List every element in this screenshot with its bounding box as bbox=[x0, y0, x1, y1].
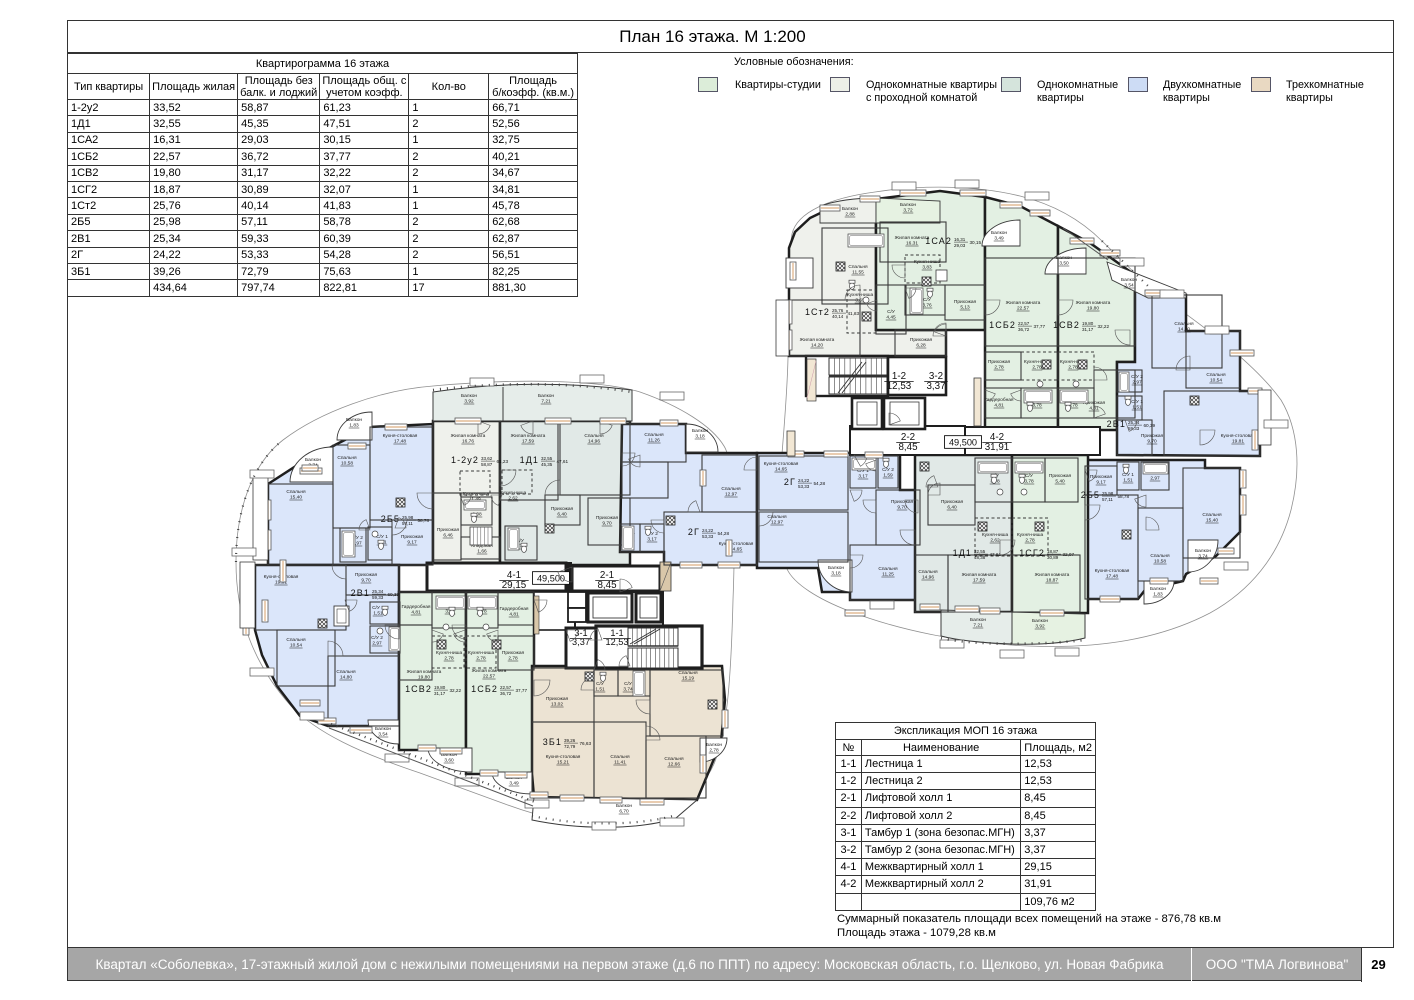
svg-text:5,13: 5,13 bbox=[960, 305, 970, 311]
svg-text:30,89: 30,89 bbox=[1047, 555, 1059, 560]
svg-text:2,78: 2,78 bbox=[476, 656, 486, 662]
svg-text:Жилая комната: Жилая комната bbox=[472, 668, 507, 674]
svg-text:С/У: С/У bbox=[923, 297, 932, 303]
svg-text:58,78: 58,78 bbox=[417, 518, 429, 523]
svg-text:Балкон: Балкон bbox=[706, 742, 722, 748]
svg-text:29,15: 29,15 bbox=[502, 580, 527, 591]
svg-text:Прихожая: Прихожая bbox=[1141, 433, 1164, 439]
svg-text:3,72: 3,72 bbox=[903, 208, 913, 214]
svg-text:Балкон: Балкон bbox=[461, 393, 477, 399]
svg-text:31,91: 31,91 bbox=[985, 442, 1010, 453]
svg-text:3,92: 3,92 bbox=[1035, 624, 1045, 630]
svg-text:Прихожая: Прихожая bbox=[502, 650, 525, 656]
svg-text:11,41: 11,41 bbox=[614, 760, 626, 766]
svg-text:72,79: 72,79 bbox=[564, 744, 576, 749]
svg-text:10,54: 10,54 bbox=[290, 643, 302, 649]
svg-text:9,70: 9,70 bbox=[602, 521, 612, 527]
svg-text:3,83: 3,83 bbox=[922, 265, 932, 271]
svg-text:Прихожая: Прихожая bbox=[910, 337, 933, 343]
svg-text:33,62: 33,62 bbox=[481, 456, 493, 461]
svg-text:2,78: 2,78 bbox=[1032, 365, 1042, 371]
svg-text:3,78: 3,78 bbox=[1032, 403, 1042, 409]
svg-text:15,40: 15,40 bbox=[290, 495, 302, 501]
svg-text:29,03: 29,03 bbox=[954, 243, 966, 248]
svg-text:25,98: 25,98 bbox=[1102, 491, 1114, 496]
svg-text:Балкон: Балкон bbox=[375, 726, 391, 732]
svg-text:Жилая комната: Жилая комната bbox=[1076, 300, 1111, 306]
svg-text:2,97: 2,97 bbox=[1150, 476, 1160, 482]
svg-text:Балкон: Балкон bbox=[1056, 255, 1072, 261]
svg-text:Кухня-ниша: Кухня-ниша bbox=[500, 490, 527, 496]
svg-text:17,59: 17,59 bbox=[522, 439, 534, 445]
svg-text:36,72: 36,72 bbox=[500, 691, 512, 696]
svg-text:7,21: 7,21 bbox=[541, 399, 551, 405]
svg-text:Жилая комната: Жилая комната bbox=[1006, 300, 1041, 306]
svg-text:53,33: 53,33 bbox=[798, 484, 810, 489]
svg-text:Жилая комната: Жилая комната bbox=[962, 572, 997, 578]
svg-text:41,83: 41,83 bbox=[847, 311, 859, 316]
svg-text:22,57: 22,57 bbox=[1017, 306, 1029, 312]
svg-text:Кухня-ниша: Кухня-ниша bbox=[468, 650, 495, 656]
svg-text:Спальня: Спальня bbox=[848, 264, 868, 270]
svg-text:3,18: 3,18 bbox=[695, 434, 705, 440]
svg-text:13,02: 13,02 bbox=[551, 702, 563, 708]
svg-text:1СБ2: 1СБ2 bbox=[989, 320, 1016, 330]
svg-text:57,11: 57,11 bbox=[402, 521, 413, 526]
svg-text:Кухня-ниша: Кухня-ниша bbox=[914, 259, 941, 265]
svg-text:Спальня: Спальня bbox=[721, 486, 741, 492]
svg-text:15,21: 15,21 bbox=[557, 760, 569, 766]
svg-text:17,59: 17,59 bbox=[973, 578, 985, 584]
svg-text:2,78: 2,78 bbox=[444, 656, 454, 662]
svg-text:1-2у2: 1-2у2 bbox=[451, 455, 479, 465]
svg-text:Балкон: Балкон bbox=[305, 457, 321, 463]
svg-text:32,55: 32,55 bbox=[541, 456, 553, 461]
svg-text:3,50: 3,50 bbox=[1059, 261, 1069, 267]
svg-text:Спальня: Спальня bbox=[1150, 553, 1170, 559]
svg-text:Прихожая: Прихожая bbox=[551, 506, 574, 512]
svg-text:54,28: 54,28 bbox=[813, 481, 825, 486]
svg-text:2,78: 2,78 bbox=[709, 748, 719, 754]
svg-text:Балкон: Балкон bbox=[991, 230, 1007, 236]
svg-text:Спальня: Спальня bbox=[337, 455, 357, 461]
svg-text:3,76: 3,76 bbox=[922, 303, 932, 309]
svg-text:14,80: 14,80 bbox=[340, 675, 352, 681]
svg-text:3,92: 3,92 bbox=[464, 399, 474, 405]
svg-text:2,78: 2,78 bbox=[994, 365, 1004, 371]
svg-text:С/У 2: С/У 2 bbox=[1131, 374, 1143, 380]
svg-text:10,54: 10,54 bbox=[1210, 378, 1222, 384]
svg-text:48,38: 48,38 bbox=[974, 555, 986, 560]
svg-text:2Б5: 2Б5 bbox=[1081, 490, 1100, 500]
svg-text:Прихожая: Прихожая bbox=[546, 696, 569, 702]
svg-text:С/У 1: С/У 1 bbox=[1122, 472, 1134, 478]
svg-text:Спальня: Спальня bbox=[664, 756, 684, 762]
svg-text:57,11: 57,11 bbox=[1102, 497, 1113, 502]
svg-text:1Д1: 1Д1 bbox=[953, 548, 972, 558]
svg-text:Спальня: Спальня bbox=[1206, 372, 1226, 378]
svg-text:Балкон: Балкон bbox=[900, 202, 916, 208]
svg-text:3,17: 3,17 bbox=[647, 537, 657, 543]
svg-text:22,57: 22,57 bbox=[1018, 321, 1030, 326]
svg-text:Спальня: Спальня bbox=[336, 669, 356, 675]
svg-text:8,45: 8,45 bbox=[597, 580, 617, 591]
svg-text:1,51: 1,51 bbox=[1132, 405, 1142, 411]
svg-text:54,28: 54,28 bbox=[717, 531, 729, 536]
svg-text:58,78: 58,78 bbox=[1117, 494, 1129, 499]
svg-text:6,40: 6,40 bbox=[947, 505, 957, 511]
svg-text:Кухня-ниша: Кухня-ниша bbox=[436, 650, 463, 656]
svg-text:12,66: 12,66 bbox=[668, 762, 680, 768]
svg-text:Прихожая: Прихожая bbox=[355, 572, 378, 578]
svg-text:25,98: 25,98 bbox=[402, 515, 414, 520]
svg-text:Кухня-столовая: Кухня-столовая bbox=[546, 754, 581, 760]
svg-text:Кухня-столовая: Кухня-столовая bbox=[1095, 568, 1130, 574]
svg-text:32,22: 32,22 bbox=[1097, 324, 1109, 329]
svg-text:7,21: 7,21 bbox=[973, 623, 983, 629]
svg-text:9,17: 9,17 bbox=[407, 540, 417, 546]
svg-text:1,51: 1,51 bbox=[1123, 478, 1133, 484]
svg-text:Прихожая: Прихожая bbox=[437, 527, 460, 533]
svg-text:Спальня: Спальня bbox=[767, 514, 787, 520]
svg-text:1,51: 1,51 bbox=[373, 611, 383, 617]
svg-text:32,22: 32,22 bbox=[449, 688, 461, 693]
svg-text:Балкон: Балкон bbox=[828, 565, 844, 571]
svg-text:Спальня: Спальня bbox=[918, 569, 938, 575]
svg-text:9,70: 9,70 bbox=[361, 578, 371, 584]
svg-text:С/У: С/У bbox=[1025, 473, 1034, 479]
svg-text:Спальня: Спальня bbox=[1174, 321, 1194, 327]
svg-text:11,26: 11,26 bbox=[648, 438, 660, 444]
svg-text:16,31: 16,31 bbox=[906, 241, 918, 247]
svg-text:5,40: 5,40 bbox=[1055, 479, 1065, 485]
svg-text:Балкон: Балкон bbox=[1195, 548, 1211, 554]
svg-text:14,96: 14,96 bbox=[922, 575, 934, 581]
svg-text:1СВ2: 1СВ2 bbox=[405, 684, 432, 694]
svg-text:32,07: 32,07 bbox=[1062, 552, 1074, 557]
svg-text:39,26: 39,26 bbox=[564, 738, 576, 743]
svg-text:1Д1: 1Д1 bbox=[520, 455, 539, 465]
svg-text:Прихожая: Прихожая bbox=[1049, 473, 1072, 479]
svg-text:53,33: 53,33 bbox=[702, 534, 714, 539]
svg-text:С/У: С/У bbox=[887, 309, 896, 315]
svg-text:Прихожая: Прихожая bbox=[941, 499, 964, 505]
svg-text:14,80: 14,80 bbox=[1178, 327, 1190, 333]
svg-text:1,83: 1,83 bbox=[349, 423, 359, 429]
svg-text:1,51: 1,51 bbox=[595, 687, 605, 693]
svg-text:3,49: 3,49 bbox=[994, 236, 1004, 242]
svg-text:Жилая комната: Жилая комната bbox=[1035, 572, 1070, 578]
svg-text:19,80: 19,80 bbox=[1082, 321, 1094, 326]
svg-text:Кухня-ниша: Кухня-ниша bbox=[982, 532, 1009, 538]
svg-text:60,39: 60,39 bbox=[1143, 423, 1155, 428]
svg-text:1,83: 1,83 bbox=[1153, 592, 1163, 598]
svg-text:4,81: 4,81 bbox=[411, 610, 421, 616]
svg-text:3,74: 3,74 bbox=[623, 687, 633, 693]
svg-text:Прихожая: Прихожая bbox=[954, 299, 977, 305]
svg-text:С/У 1: С/У 1 bbox=[1131, 399, 1143, 405]
svg-text:Кухня-ниша: Кухня-ниша bbox=[1017, 532, 1044, 538]
svg-text:1СВ2: 1СВ2 bbox=[1053, 320, 1080, 330]
svg-text:Спальня: Спальня bbox=[644, 432, 664, 438]
svg-text:С/У: С/У bbox=[596, 681, 605, 687]
svg-text:19,81: 19,81 bbox=[1232, 439, 1244, 445]
svg-text:4,81: 4,81 bbox=[994, 403, 1004, 409]
svg-text:15,19: 15,19 bbox=[682, 676, 694, 682]
svg-text:12,97: 12,97 bbox=[725, 492, 737, 498]
svg-text:6,40: 6,40 bbox=[557, 512, 567, 518]
svg-text:19,80: 19,80 bbox=[1087, 306, 1099, 312]
svg-text:15,40: 15,40 bbox=[1206, 518, 1218, 524]
svg-text:25,76: 25,76 bbox=[832, 308, 844, 313]
svg-text:9,70: 9,70 bbox=[1147, 439, 1157, 445]
svg-text:6,28: 6,28 bbox=[916, 343, 926, 349]
svg-text:2,78: 2,78 bbox=[1025, 538, 1035, 544]
svg-text:18,87: 18,87 bbox=[1047, 549, 1059, 554]
svg-text:6,46: 6,46 bbox=[443, 533, 453, 539]
svg-text:2В1: 2В1 bbox=[351, 588, 370, 598]
svg-text:4,45: 4,45 bbox=[886, 315, 896, 321]
svg-text:Спальня: Спальня bbox=[286, 637, 306, 643]
svg-text:1Ст2: 1Ст2 bbox=[805, 307, 830, 317]
svg-text:9,70: 9,70 bbox=[897, 505, 907, 511]
svg-text:16,31: 16,31 bbox=[954, 237, 966, 242]
svg-text:Спальня: Спальня bbox=[286, 489, 306, 495]
svg-text:Балкон: Балкон bbox=[1121, 277, 1137, 283]
svg-text:6,70: 6,70 bbox=[619, 809, 629, 815]
svg-text:Балкон: Балкон bbox=[842, 206, 858, 212]
svg-text:3,78: 3,78 bbox=[1024, 479, 1034, 485]
svg-text:17,48: 17,48 bbox=[1106, 574, 1118, 580]
svg-text:Кухня-ниша: Кухня-ниша bbox=[463, 491, 490, 497]
svg-text:3,60: 3,60 bbox=[444, 758, 454, 764]
svg-text:31,17: 31,17 bbox=[1082, 327, 1094, 332]
svg-text:Прихожая: Прихожая bbox=[596, 515, 619, 521]
svg-text:76,63: 76,63 bbox=[579, 741, 591, 746]
svg-text:3,37: 3,37 bbox=[926, 381, 945, 392]
svg-text:Кухня-столовая: Кухня-столовая bbox=[764, 461, 799, 467]
svg-text:3,49: 3,49 bbox=[509, 781, 519, 787]
svg-text:49,500: 49,500 bbox=[949, 437, 977, 447]
svg-text:11,25: 11,25 bbox=[882, 572, 894, 578]
svg-text:3,74: 3,74 bbox=[1198, 554, 1208, 560]
svg-text:49,500: 49,500 bbox=[537, 573, 565, 583]
svg-text:36,72: 36,72 bbox=[1018, 327, 1030, 332]
svg-text:Балкон: Балкон bbox=[1150, 586, 1166, 592]
svg-text:32,55: 32,55 bbox=[974, 549, 986, 554]
svg-text:22,57: 22,57 bbox=[483, 674, 495, 680]
svg-text:17,48: 17,48 bbox=[394, 439, 406, 445]
svg-text:2,97: 2,97 bbox=[372, 641, 382, 647]
svg-text:2Г: 2Г bbox=[688, 527, 700, 537]
svg-text:Гардеробная: Гардеробная bbox=[401, 604, 430, 610]
svg-text:Жилая комната: Жилая комната bbox=[800, 337, 835, 343]
svg-text:3,54: 3,54 bbox=[378, 732, 388, 738]
svg-text:3,17: 3,17 bbox=[858, 474, 868, 480]
svg-text:30,15: 30,15 bbox=[969, 240, 981, 245]
svg-text:2В1: 2В1 bbox=[1107, 419, 1126, 429]
svg-text:Гардеробная: Гардеробная bbox=[984, 397, 1013, 403]
svg-text:Балкон: Балкон bbox=[538, 393, 554, 399]
svg-text:24,22: 24,22 bbox=[798, 478, 810, 483]
svg-text:25,34: 25,34 bbox=[372, 589, 384, 594]
svg-text:Спальня: Спальня bbox=[878, 566, 898, 572]
svg-text:19,80: 19,80 bbox=[418, 675, 430, 681]
svg-text:37,77: 37,77 bbox=[515, 688, 527, 693]
svg-text:Кухня-столовая: Кухня-столовая bbox=[383, 433, 418, 439]
svg-text:12,53: 12,53 bbox=[887, 381, 912, 392]
svg-text:3,18: 3,18 bbox=[831, 571, 841, 577]
svg-text:8,45: 8,45 bbox=[898, 442, 918, 453]
svg-text:2,88: 2,88 bbox=[845, 212, 855, 218]
svg-text:1СА2: 1СА2 bbox=[925, 236, 952, 246]
svg-text:1,66: 1,66 bbox=[477, 549, 487, 555]
svg-text:Балкон: Балкон bbox=[970, 617, 986, 623]
svg-text:16,76: 16,76 bbox=[462, 439, 474, 445]
svg-text:11,55: 11,55 bbox=[852, 270, 864, 276]
svg-text:Балкон: Балкон bbox=[346, 417, 362, 423]
svg-text:19,80: 19,80 bbox=[434, 685, 446, 690]
svg-text:Жилая комната: Жилая комната bbox=[511, 433, 546, 439]
svg-text:Спальня: Спальня bbox=[678, 670, 698, 676]
svg-text:24,22: 24,22 bbox=[702, 528, 714, 533]
svg-text:14,96: 14,96 bbox=[588, 439, 600, 445]
svg-text:С/У: С/У bbox=[624, 681, 633, 687]
svg-text:Спальня: Спальня bbox=[610, 754, 630, 760]
svg-text:2,62: 2,62 bbox=[990, 538, 1000, 544]
svg-text:Прихожая: Прихожая bbox=[401, 534, 424, 540]
svg-text:4,81: 4,81 bbox=[509, 612, 519, 618]
svg-text:14,20: 14,20 bbox=[811, 343, 823, 349]
svg-text:Жилая комната: Жилая комната bbox=[407, 669, 442, 675]
svg-text:3,54: 3,54 bbox=[1124, 283, 1134, 289]
svg-text:59,33: 59,33 bbox=[372, 595, 384, 600]
svg-text:10,58: 10,58 bbox=[341, 461, 353, 467]
svg-text:2,78: 2,78 bbox=[1068, 365, 1078, 371]
svg-text:31,17: 31,17 bbox=[434, 691, 446, 696]
svg-text:47,61: 47,61 bbox=[556, 459, 568, 464]
svg-text:40,14: 40,14 bbox=[832, 314, 844, 319]
svg-text:2,97: 2,97 bbox=[1132, 380, 1142, 386]
svg-text:С/У 2: С/У 2 bbox=[371, 635, 383, 641]
svg-text:9,17: 9,17 bbox=[1096, 480, 1106, 486]
svg-text:25,34: 25,34 bbox=[1128, 420, 1140, 425]
svg-text:60,39: 60,39 bbox=[387, 592, 399, 597]
svg-text:Спальня: Спальня bbox=[1202, 512, 1222, 518]
svg-text:Кухня-столовая: Кухня-столовая bbox=[1221, 433, 1256, 439]
svg-text:22,57: 22,57 bbox=[500, 685, 512, 690]
svg-text:2,78: 2,78 bbox=[508, 656, 518, 662]
svg-text:1,59: 1,59 bbox=[883, 473, 893, 479]
svg-text:3Б1: 3Б1 bbox=[543, 737, 562, 747]
svg-text:37,77: 37,77 bbox=[1033, 324, 1045, 329]
svg-text:61,23: 61,23 bbox=[496, 459, 508, 464]
svg-text:Гардеробная: Гардеробная bbox=[499, 606, 528, 612]
svg-text:1СБ2: 1СБ2 bbox=[471, 684, 498, 694]
svg-text:58,87: 58,87 bbox=[481, 462, 493, 467]
svg-text:2,62: 2,62 bbox=[508, 496, 518, 502]
svg-text:12,97: 12,97 bbox=[771, 520, 783, 526]
svg-text:Балкон: Балкон bbox=[616, 803, 632, 809]
svg-text:Балкон: Балкон bbox=[1032, 618, 1048, 624]
svg-text:1СГ2: 1СГ2 bbox=[1019, 548, 1045, 558]
svg-text:14,65: 14,65 bbox=[775, 467, 787, 473]
svg-text:18,87: 18,87 bbox=[1046, 578, 1058, 584]
svg-text:45,35: 45,35 bbox=[541, 462, 553, 467]
svg-text:Балкон: Балкон bbox=[692, 428, 708, 434]
svg-text:С/У 2: С/У 2 bbox=[882, 467, 894, 473]
svg-text:10,58: 10,58 bbox=[1154, 559, 1166, 565]
svg-text:Кухня-столовая: Кухня-столовая bbox=[719, 541, 754, 547]
svg-text:Прихожая: Прихожая bbox=[988, 359, 1011, 365]
svg-text:2Г: 2Г bbox=[784, 477, 796, 487]
